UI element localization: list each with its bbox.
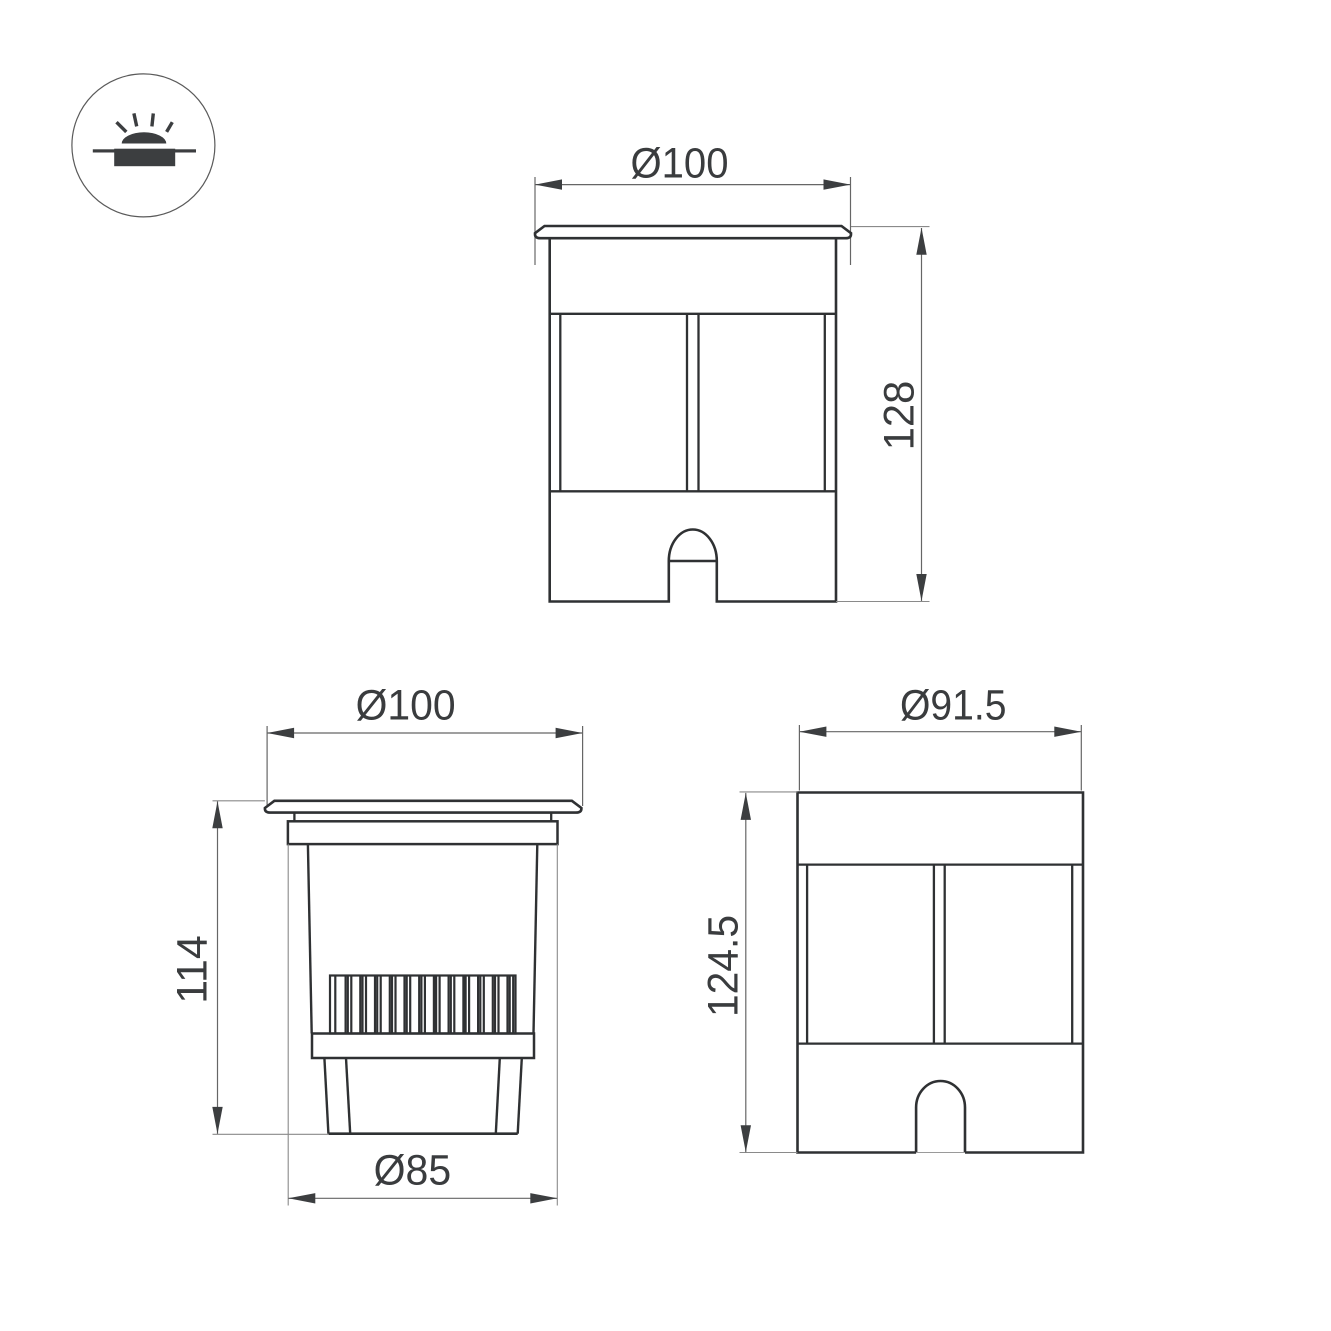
svg-text:Ø85: Ø85 <box>374 1147 452 1195</box>
svg-text:Ø91.5: Ø91.5 <box>900 682 1007 730</box>
svg-text:124.5: 124.5 <box>700 915 748 1017</box>
svg-text:128: 128 <box>876 381 924 451</box>
svg-text:114: 114 <box>169 935 217 1004</box>
svg-text:Ø100: Ø100 <box>356 682 456 730</box>
svg-text:Ø100: Ø100 <box>631 140 729 188</box>
